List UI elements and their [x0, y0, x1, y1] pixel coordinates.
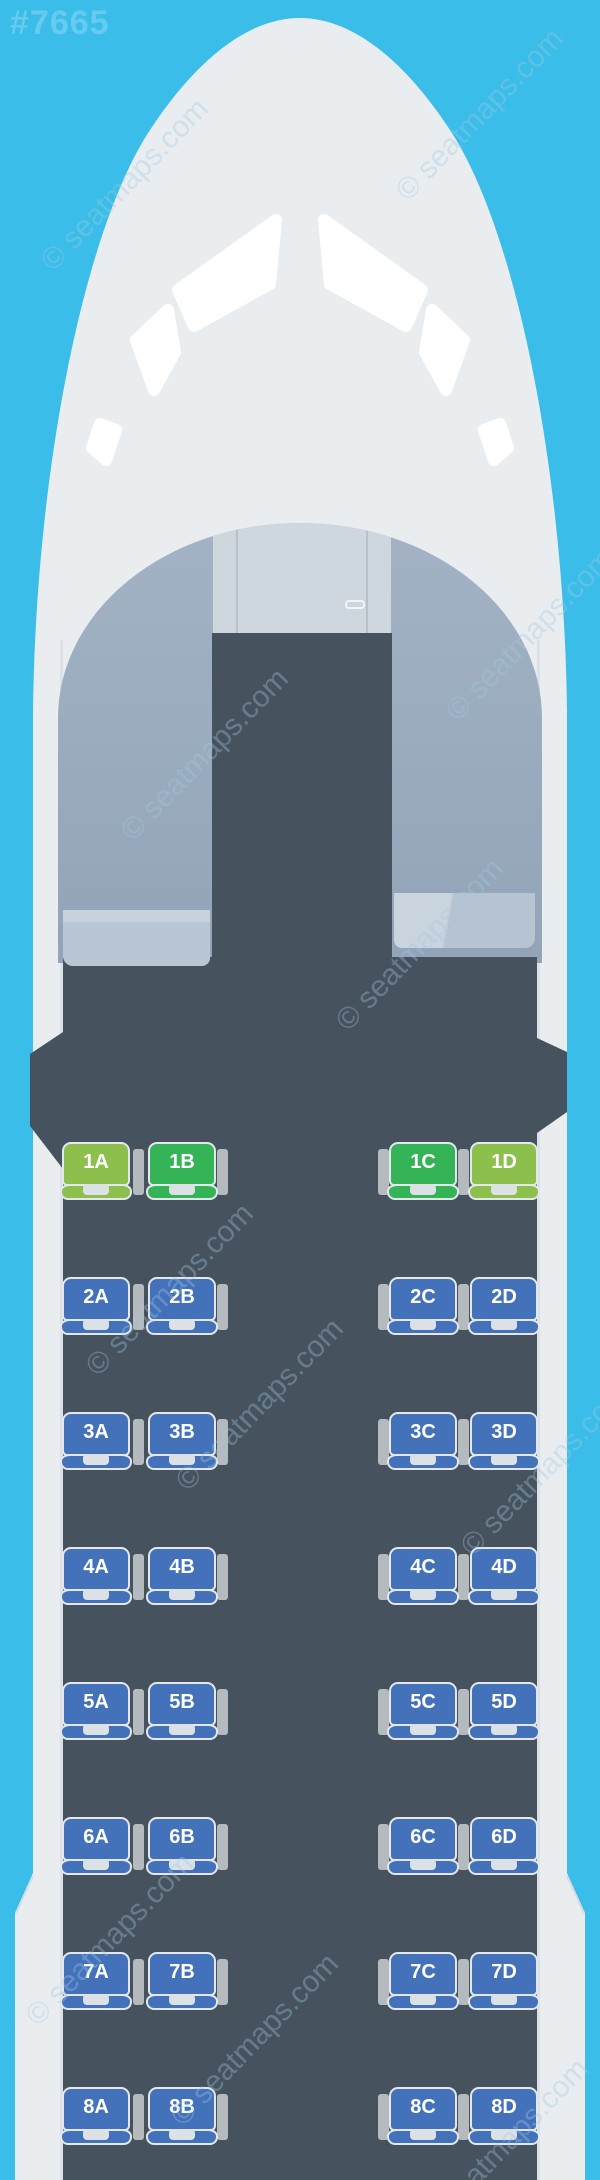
seat-cushion [387, 1859, 459, 1875]
seatbelt-notch [83, 1454, 109, 1465]
seat-6A[interactable]: 6A [62, 1817, 130, 1875]
seat-6B[interactable]: 6B [148, 1817, 216, 1875]
cockpit-bulkhead-panel [213, 523, 391, 635]
armrest [133, 1824, 144, 1870]
seat-back: 7A [62, 1952, 130, 1996]
armrest [458, 1554, 469, 1600]
seat-label: 5D [472, 1691, 536, 1714]
armrest [217, 1689, 228, 1735]
seat-5C[interactable]: 5C [389, 1682, 457, 1740]
seat-label: 3A [64, 1421, 128, 1444]
seat-label: 5B [150, 1691, 214, 1714]
seat-3D[interactable]: 3D [470, 1412, 538, 1470]
seat-cushion [146, 1724, 218, 1740]
seat-back: 8C [389, 2087, 457, 2131]
seat-back: 4C [389, 1547, 457, 1591]
seat-5B[interactable]: 5B [148, 1682, 216, 1740]
seatbelt-notch [491, 1454, 517, 1465]
seat-back: 5B [148, 1682, 216, 1726]
seat-back: 3C [389, 1412, 457, 1456]
front-aisle [212, 633, 392, 963]
seat-label: 3B [150, 1421, 214, 1444]
galley-right [394, 893, 535, 948]
seat-back: 3A [62, 1412, 130, 1456]
seat-label: 3C [391, 1421, 455, 1444]
armrest [458, 2094, 469, 2140]
armrest [217, 2094, 228, 2140]
seat-cushion [60, 1859, 132, 1875]
seat-back: 1D [470, 1142, 538, 1186]
seat-label: 6C [391, 1826, 455, 1849]
armrest [458, 1689, 469, 1735]
seatbelt-notch [410, 1589, 436, 1600]
seat-back: 5A [62, 1682, 130, 1726]
seat-4A[interactable]: 4A [62, 1547, 130, 1605]
seat-7D[interactable]: 7D [470, 1952, 538, 2010]
seat-cushion [387, 1319, 459, 1335]
seat-label: 7C [391, 1961, 455, 1984]
seat-label: 7D [472, 1961, 536, 1984]
seatbelt-notch [491, 1859, 517, 1870]
seat-back: 8B [148, 2087, 216, 2131]
seat-label: 4A [64, 1556, 128, 1579]
seat-back: 2B [148, 1277, 216, 1321]
seat-back: 2A [62, 1277, 130, 1321]
seat-back: 8D [470, 2087, 538, 2131]
seatbelt-notch [83, 1184, 109, 1195]
seat-cushion [468, 1184, 540, 1200]
seat-8D[interactable]: 8D [470, 2087, 538, 2145]
seat-back: 1A [62, 1142, 130, 1186]
seatbelt-notch [169, 1454, 195, 1465]
seat-cushion [146, 1589, 218, 1605]
seat-8B[interactable]: 8B [148, 2087, 216, 2145]
seat-label: 5A [64, 1691, 128, 1714]
seatbelt-notch [169, 1589, 195, 1600]
seat-back: 5D [470, 1682, 538, 1726]
armrest [217, 1959, 228, 2005]
seat-cushion [387, 1589, 459, 1605]
seat-2A[interactable]: 2A [62, 1277, 130, 1335]
seat-label: 1C [391, 1151, 455, 1174]
seatbelt-notch [410, 1994, 436, 2005]
seatbelt-notch [491, 2129, 517, 2140]
seat-label: 6B [150, 1826, 214, 1849]
seat-back: 8A [62, 2087, 130, 2131]
seat-back: 1C [389, 1142, 457, 1186]
armrest [217, 1284, 228, 1330]
seat-4C[interactable]: 4C [389, 1547, 457, 1605]
seatbelt-notch [83, 1319, 109, 1330]
seat-cushion [60, 1994, 132, 2010]
armrest [217, 1554, 228, 1600]
seat-cushion [387, 1724, 459, 1740]
seat-4B[interactable]: 4B [148, 1547, 216, 1605]
armrest [217, 1824, 228, 1870]
seat-cushion [146, 1859, 218, 1875]
seatbelt-notch [83, 2129, 109, 2140]
seat-cushion [387, 2129, 459, 2145]
seat-label: 6D [472, 1826, 536, 1849]
seat-cushion [60, 1319, 132, 1335]
seat-back: 1B [148, 1142, 216, 1186]
seat-label: 1D [472, 1151, 536, 1174]
seat-cushion [468, 1319, 540, 1335]
seat-back: 3D [470, 1412, 538, 1456]
seat-cushion [468, 2129, 540, 2145]
seatmap-canvas: #7665 1A1B1C1D2A2B2C2D3A3B3C3D4A4B4C4D5A… [0, 0, 600, 2180]
seat-cushion [146, 1994, 218, 2010]
seatbelt-notch [169, 1994, 195, 2005]
seat-cushion [146, 1184, 218, 1200]
armrest [133, 1149, 144, 1195]
seatbelt-notch [169, 1859, 195, 1870]
seat-cushion [387, 1184, 459, 1200]
seatbelt-notch [491, 1994, 517, 2005]
armrest [458, 1824, 469, 1870]
cockpit-door-handle-icon [345, 600, 365, 609]
seat-cushion [60, 1724, 132, 1740]
seat-back: 4B [148, 1547, 216, 1591]
seat-cushion [468, 1454, 540, 1470]
seat-label: 4B [150, 1556, 214, 1579]
seat-cushion [146, 2129, 218, 2145]
seat-label: 3D [472, 1421, 536, 1444]
seat-back: 6C [389, 1817, 457, 1861]
seatbelt-notch [410, 2129, 436, 2140]
armrest [217, 1149, 228, 1195]
seatbelt-notch [410, 1319, 436, 1330]
seat-label: 7A [64, 1961, 128, 1984]
seat-2D[interactable]: 2D [470, 1277, 538, 1335]
seat-cushion [468, 1724, 540, 1740]
seat-cushion [468, 1994, 540, 2010]
armrest [217, 1419, 228, 1465]
seatbelt-notch [83, 1724, 109, 1735]
seat-back: 3B [148, 1412, 216, 1456]
seat-back: 6B [148, 1817, 216, 1861]
armrest [458, 1959, 469, 2005]
seat-back: 4A [62, 1547, 130, 1591]
seat-label: 7B [150, 1961, 214, 1984]
plane-id-label: #7665 [10, 4, 110, 43]
bulkhead-seam [366, 523, 368, 635]
seatbelt-notch [491, 1589, 517, 1600]
seat-3A[interactable]: 3A [62, 1412, 130, 1470]
seat-back: 2C [389, 1277, 457, 1321]
seat-6C[interactable]: 6C [389, 1817, 457, 1875]
seat-label: 1B [150, 1151, 214, 1174]
seatbelt-notch [410, 1859, 436, 1870]
seatbelt-notch [491, 1724, 517, 1735]
seatbelt-notch [410, 1184, 436, 1195]
seat-label: 6A [64, 1826, 128, 1849]
seat-label: 2B [150, 1286, 214, 1309]
seat-7C[interactable]: 7C [389, 1952, 457, 2010]
seat-1A[interactable]: 1A [62, 1142, 130, 1200]
armrest [133, 1959, 144, 2005]
seat-2C[interactable]: 2C [389, 1277, 457, 1335]
seat-cushion [387, 1994, 459, 2010]
seat-label: 2D [472, 1286, 536, 1309]
armrest [458, 1284, 469, 1330]
seat-back: 2D [470, 1277, 538, 1321]
seat-label: 2A [64, 1286, 128, 1309]
seatbelt-notch [83, 1589, 109, 1600]
seat-8A[interactable]: 8A [62, 2087, 130, 2145]
seatbelt-notch [410, 1724, 436, 1735]
galley-left [63, 910, 210, 966]
seat-back: 4D [470, 1547, 538, 1591]
seatbelt-notch [410, 1454, 436, 1465]
seat-back: 7D [470, 1952, 538, 1996]
seat-1B[interactable]: 1B [148, 1142, 216, 1200]
seatbelt-notch [491, 1184, 517, 1195]
armrest [133, 1284, 144, 1330]
seat-cushion [60, 2129, 132, 2145]
seat-3C[interactable]: 3C [389, 1412, 457, 1470]
seatbelt-notch [169, 1319, 195, 1330]
seat-cushion [60, 1184, 132, 1200]
armrest [133, 1689, 144, 1735]
seat-label: 4D [472, 1556, 536, 1579]
seat-cushion [468, 1859, 540, 1875]
seatbelt-notch [169, 2129, 195, 2140]
armrest [133, 2094, 144, 2140]
seat-2B[interactable]: 2B [148, 1277, 216, 1335]
seat-8C[interactable]: 8C [389, 2087, 457, 2145]
seatbelt-notch [83, 1994, 109, 2005]
armrest [458, 1149, 469, 1195]
seat-label: 8C [391, 2096, 455, 2119]
seat-6D[interactable]: 6D [470, 1817, 538, 1875]
seat-cushion [146, 1319, 218, 1335]
seat-label: 4C [391, 1556, 455, 1579]
armrest [133, 1554, 144, 1600]
seatbelt-notch [83, 1859, 109, 1870]
seat-cushion [60, 1454, 132, 1470]
seat-label: 8A [64, 2096, 128, 2119]
seat-cushion [468, 1589, 540, 1605]
seat-label: 8B [150, 2096, 214, 2119]
seat-label: 2C [391, 1286, 455, 1309]
seat-cushion [60, 1589, 132, 1605]
seat-5A[interactable]: 5A [62, 1682, 130, 1740]
seat-4D[interactable]: 4D [470, 1547, 538, 1605]
seat-5D[interactable]: 5D [470, 1682, 538, 1740]
seat-label: 1A [64, 1151, 128, 1174]
seat-back: 6D [470, 1817, 538, 1861]
seat-7A[interactable]: 7A [62, 1952, 130, 2010]
seatbelt-notch [169, 1184, 195, 1195]
armrest [458, 1419, 469, 1465]
bulkhead-seam [236, 523, 238, 635]
seatbelt-notch [491, 1319, 517, 1330]
seat-label: 5C [391, 1691, 455, 1714]
seat-cushion [146, 1454, 218, 1470]
seat-label: 8D [472, 2096, 536, 2119]
armrest [133, 1419, 144, 1465]
seat-7B[interactable]: 7B [148, 1952, 216, 2010]
seat-back: 6A [62, 1817, 130, 1861]
seat-cushion [387, 1454, 459, 1470]
seatbelt-notch [169, 1724, 195, 1735]
seat-back: 5C [389, 1682, 457, 1726]
seat-back: 7B [148, 1952, 216, 1996]
seat-3B[interactable]: 3B [148, 1412, 216, 1470]
seat-1C[interactable]: 1C [389, 1142, 457, 1200]
seat-1D[interactable]: 1D [470, 1142, 538, 1200]
seat-back: 7C [389, 1952, 457, 1996]
